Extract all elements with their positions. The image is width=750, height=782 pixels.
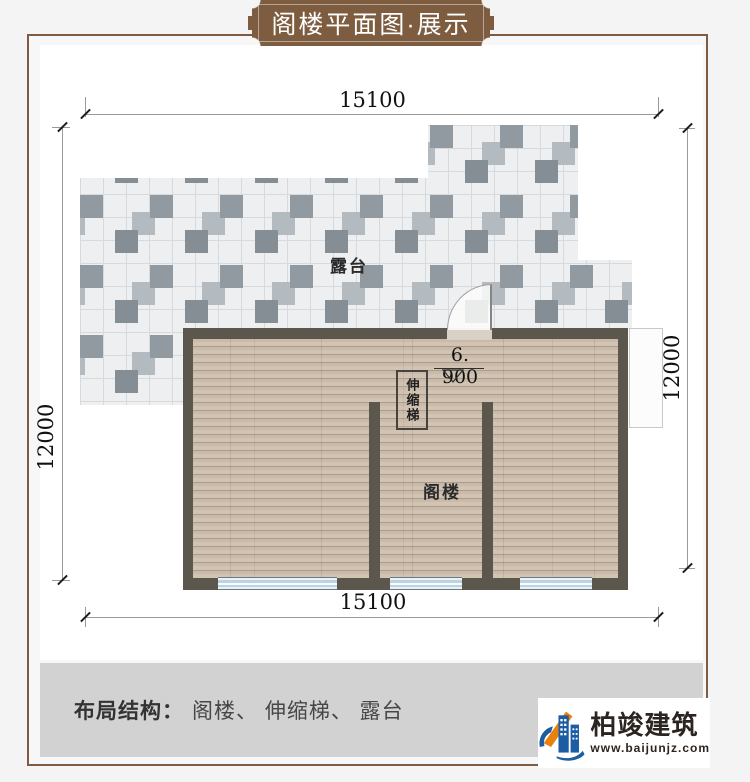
interior-wall-left (369, 402, 380, 590)
attic-label: 阁楼 (423, 478, 461, 503)
brand-logo: 柏竣建筑 www.baijunjz.com (538, 698, 710, 768)
poster-page: 露台 阁楼 伸缩梯 6. 900 15100 15100 12000 12000… (0, 0, 750, 782)
layout-summary-items: 阁楼、 伸缩梯、 露台 (192, 695, 404, 725)
dim-line-top (85, 114, 658, 115)
window-1 (218, 577, 337, 590)
window-2 (390, 577, 462, 590)
dim-line-left (62, 127, 63, 580)
dim-value-left: 12000 (26, 397, 66, 477)
page-title: 阁楼平面图·展示 (271, 5, 470, 41)
dim-value-bottom: 15100 (300, 590, 446, 614)
dim-line-bottom (85, 617, 658, 618)
layout-summary-label: 布局结构： (74, 695, 184, 725)
dim-value-top: 15100 (300, 88, 445, 112)
layout-summary: 布局结构： 阁楼、 伸缩梯、 露台 (74, 663, 404, 757)
logo-name: 柏竣建筑 (590, 711, 710, 740)
window-3 (520, 577, 592, 590)
ladder-box: 伸缩梯 (396, 370, 428, 430)
logo-building-icon (538, 702, 586, 764)
title-banner-border: 阁楼平面图·展示 (258, 4, 484, 42)
elevation-triangle-icon (442, 369, 464, 384)
logo-website: www.baijunjz.com (590, 741, 710, 755)
title-banner: 阁楼平面图·展示 (252, 0, 490, 46)
ladder-label: 伸缩梯 (406, 378, 419, 423)
interior-wall-right (482, 402, 493, 590)
terrace-label: 露台 (330, 252, 368, 277)
dim-value-right: 12000 (652, 328, 692, 408)
